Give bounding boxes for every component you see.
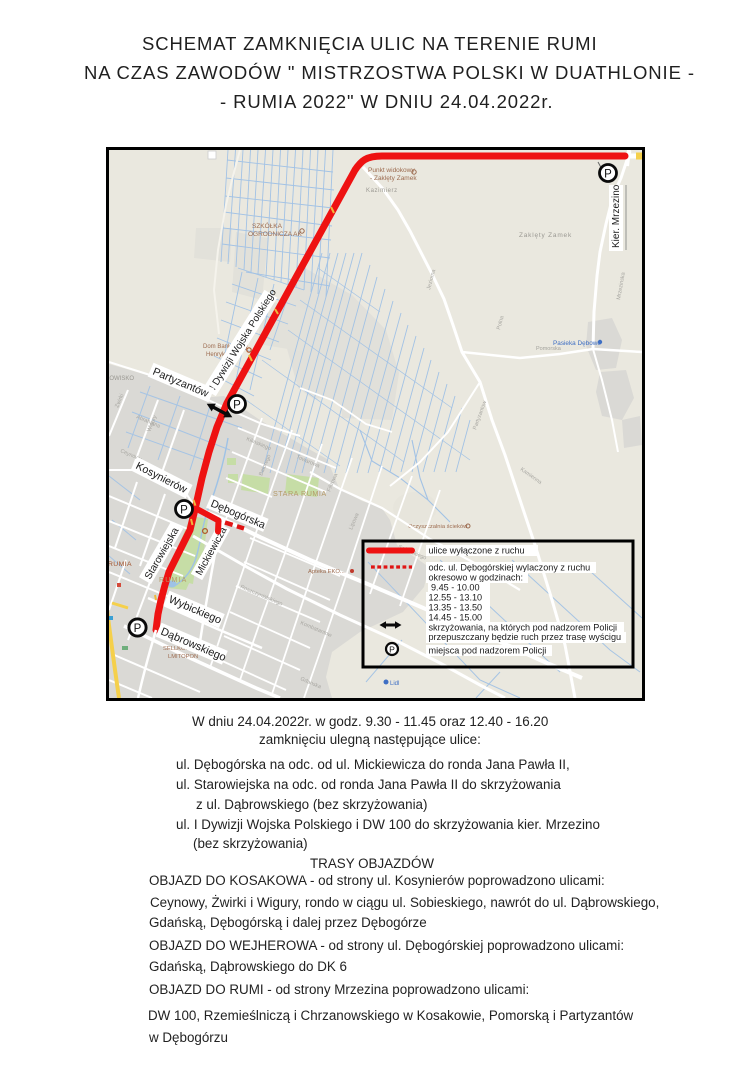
svg-text:14.45 - 15.00: 14.45 - 15.00 — [429, 613, 483, 623]
svg-text:LMITOPON: LMITOPON — [168, 654, 198, 660]
svg-text:Lidl: Lidl — [390, 681, 399, 687]
svg-text:SZKÓŁKA: SZKÓŁKA — [252, 221, 283, 230]
svg-text:RUMIA: RUMIA — [159, 577, 188, 584]
svg-text:P: P — [180, 504, 188, 516]
svg-text:ulice wyłączone z ruchu: ulice wyłączone z ruchu — [429, 546, 525, 556]
svg-text:Punkt widokowy: Punkt widokowy — [368, 167, 415, 174]
svg-text:P: P — [134, 623, 142, 635]
svg-text:9.45 - 10.00: 9.45 - 10.00 — [431, 583, 480, 593]
svg-text:Zaklęty Zamek: Zaklęty Zamek — [519, 232, 572, 239]
svg-text:P: P — [389, 644, 395, 654]
svg-text:skrzyżowania, na których pod n: skrzyżowania, na których pod nadzorem Po… — [429, 623, 618, 633]
svg-text:Kazimierz: Kazimierz — [366, 188, 398, 194]
svg-text:OGRODNICZA AK: OGRODNICZA AK — [248, 231, 302, 238]
svg-text:P: P — [233, 399, 241, 411]
svg-text:Kier. Mrzezino: Kier. Mrzezino — [611, 184, 622, 248]
svg-text:P: P — [604, 168, 612, 180]
svg-text:RUMIA: RUMIA — [109, 561, 132, 568]
svg-text:Pomorska: Pomorska — [536, 346, 562, 352]
svg-text:- Zaklęty Zamek: - Zaklęty Zamek — [370, 175, 417, 182]
svg-text:ŁOWISKO: ŁOWISKO — [109, 376, 134, 382]
svg-text:okresowo w godzinach:: okresowo w godzinach: — [429, 573, 524, 583]
svg-text:Oczyszczalnia ścieków: Oczyszczalnia ścieków — [408, 524, 468, 530]
svg-text:STARA RUMIA: STARA RUMIA — [273, 489, 327, 498]
svg-text:przepuszczany będzie ruch prze: przepuszczany będzie ruch przez trasę wy… — [429, 632, 622, 642]
svg-text:odc. ul. Dębogórskiej wylaczon: odc. ul. Dębogórskiej wylaczony z ruchu — [429, 563, 591, 573]
svg-text:12.55 - 13.10: 12.55 - 13.10 — [429, 593, 483, 603]
svg-text:miejsca pod nadzorem Policji: miejsca pod nadzorem Policji — [429, 646, 547, 656]
svg-text:Apteka EKO...: Apteka EKO... — [308, 569, 345, 575]
svg-text:13.35 - 13.50: 13.35 - 13.50 — [429, 603, 483, 613]
